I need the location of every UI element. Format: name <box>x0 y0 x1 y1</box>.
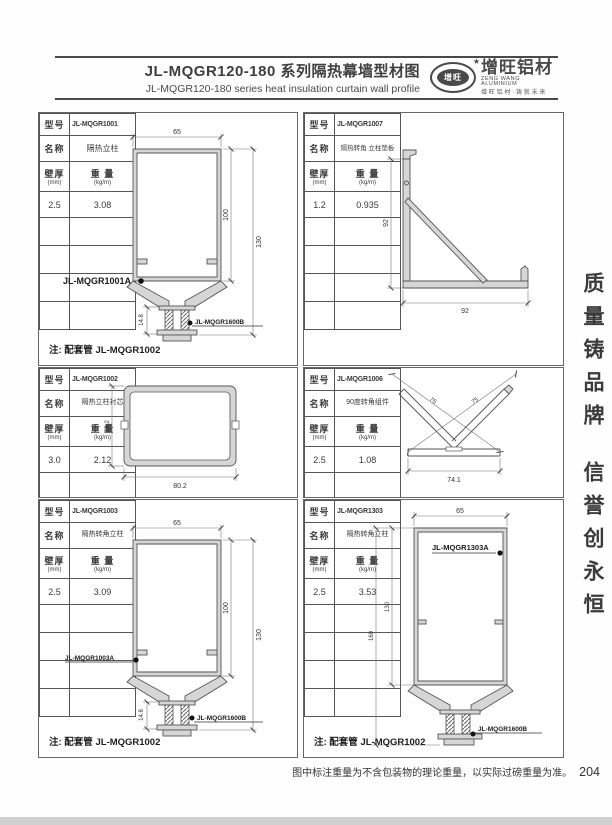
dim-label: 80.2 <box>173 483 187 490</box>
brand-name-cn: 增旺铝材 <box>481 59 556 76</box>
dim-label: 160 <box>369 630 375 641</box>
title-cn: JL-MQGR120-180 系列隔热幕墙型材图 <box>120 60 420 81</box>
part-label: JL-MQGR1600B <box>197 715 246 722</box>
title-en: JL-MQGR120-180 series heat insulation cu… <box>120 83 420 95</box>
profile-drawing-90deg-corner: 75 75 74.1 <box>304 368 563 495</box>
dim-label: 92 <box>461 308 469 315</box>
page-title: JL-MQGR120-180 系列隔热幕墙型材图 JL-MQGR120-180 … <box>120 60 420 95</box>
side-slogan: 质量铸品牌 信誉创永恒 <box>577 272 607 626</box>
part-label: JL-MQGR1303A <box>432 543 489 552</box>
logo-text: 增旺铝材 ZENG WANG ALUMINIUM 增旺铝材·铸就未来 <box>481 59 556 96</box>
dim-label: 75 <box>471 396 480 405</box>
slogan-line-2: 信誉创永恒 <box>577 461 607 626</box>
panel-note: 注: 配套管 JL-MQGR1002 <box>314 734 425 748</box>
dim-label: 130 <box>385 601 391 612</box>
profile-drawing-deep-corner-mullion: 65 130 160 JL-MQGR1303A JL-MQGR1600B <box>304 500 563 755</box>
dim-label: 65 <box>173 520 181 527</box>
panel-jl-mqgr1007: 型号JL-MQGR1007 名称隔热转角 立柱垫板 壁厚(mm) 重 量(kg/… <box>303 112 564 366</box>
star-icon: ★ <box>473 57 480 66</box>
dim-label: 58.2 <box>105 420 111 432</box>
panel-jl-mqgr1303: 型号JL-MQGR1303 名称隔热转角立柱 壁厚(mm) 重 量(kg/m) … <box>303 499 564 758</box>
profile-drawing-core-tube: 58.2 80.2 <box>39 368 297 495</box>
panel-jl-mqgr1002: 型号JL-MQGR1002 名称隔热立柱衬芯 壁厚(mm) 重 量(kg/m) … <box>38 367 298 498</box>
dim-label: 130 <box>256 629 263 641</box>
scan-edge-band <box>0 817 612 825</box>
footer-note: 图中标注重量为不含包装物的理论重量，以实际过磅重量为准。 <box>292 764 572 779</box>
page-number: 204 <box>579 765 600 779</box>
part-label: JL-MQGR1600B <box>195 319 244 326</box>
header-rule-bottom <box>55 98 558 100</box>
panel-note: 注: 配套管 JL-MQGR1002 <box>49 342 160 356</box>
dim-label: 130 <box>256 236 263 248</box>
profile-drawing-corner-pad: 92 92 <box>304 113 563 363</box>
panel-jl-mqgr1003: 型号JL-MQGR1003 名称隔热转角立柱 壁厚(mm) 重 量(kg/m) … <box>38 499 298 758</box>
panel-note: 注: 配套管 JL-MQGR1002 <box>49 734 160 748</box>
panel-jl-mqgr1006: 型号JL-MQGR1006 名称90度转角组件 壁厚(mm) 重 量(kg/m)… <box>303 367 564 498</box>
dim-label: 14.8 <box>139 709 145 721</box>
dim-label: 92 <box>383 219 390 227</box>
slogan-line-1: 质量铸品牌 <box>577 272 607 437</box>
company-logo: 增旺 ★ 增旺铝材 ZENG WANG ALUMINIUM 增旺铝材·铸就未来 <box>430 58 556 96</box>
part-label: JL-MQGR1600B <box>478 726 527 733</box>
catalog-page: JL-MQGR120-180 系列隔热幕墙型材图 JL-MQGR120-180 … <box>0 0 612 825</box>
part-label: JL-MQGR1001A <box>63 276 132 286</box>
dim-label: 14.8 <box>139 314 145 326</box>
logo-oval-badge: 增旺 ★ <box>430 62 476 93</box>
dim-label: 100 <box>223 602 230 614</box>
dim-label: 75 <box>428 397 437 406</box>
brand-tagline: 增旺铝材·铸就未来 <box>481 90 556 96</box>
dim-label: 65 <box>173 129 181 136</box>
profile-drawing-mullion: 65 100 130 14.8 JL-MQGR1001A JL-MQGR1600… <box>39 113 297 363</box>
dim-label: 65 <box>456 508 464 515</box>
panel-jl-mqgr1001: 型号JL-MQGR1001 名称隔热立柱 壁厚(mm) 重 量(kg/m) 2.… <box>38 112 298 366</box>
brand-name-en: ZENG WANG ALUMINIUM <box>481 77 556 88</box>
logo-badge-text: 增旺 <box>437 69 469 86</box>
profile-drawing-corner-mullion: 65 100 130 14.8 JL-MQGR1003A JL-MQGR1600… <box>39 500 297 755</box>
dim-label: 100 <box>223 209 230 221</box>
dim-label: 74.1 <box>447 477 461 484</box>
part-label: JL-MQGR1003A <box>65 655 114 662</box>
footer: 图中标注重量为不含包装物的理论重量，以实际过磅重量为准。 204 <box>292 764 600 779</box>
